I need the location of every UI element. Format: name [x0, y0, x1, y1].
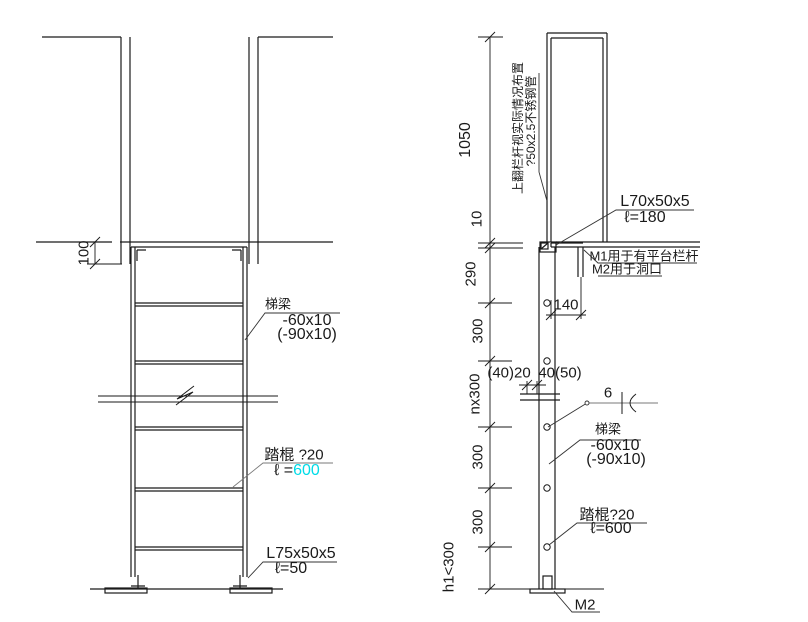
base-mark-m2-label: M2	[575, 598, 596, 613]
rung-length-prefix: ℓ =	[274, 462, 293, 479]
dim-1050-label: 1050	[458, 122, 474, 158]
rung-length-label-left: ℓ =600	[274, 463, 320, 479]
dim-300-label-1: 300	[471, 318, 486, 343]
left-view-break-symbol	[98, 386, 278, 405]
base-angle-length-label: ℓ=50	[275, 561, 307, 577]
dim-splice-right-label: 40(50)	[538, 366, 581, 381]
right-view-splice-dimension	[519, 380, 546, 394]
drawing-linework	[0, 0, 808, 622]
dim-splice-left-label: (40)20	[487, 366, 530, 381]
rung-name-label-left: 踏棍 ?20	[264, 448, 323, 463]
dim-300-label-2: 300	[471, 444, 486, 469]
dim-300-label-3: 300	[471, 509, 486, 534]
beam-size-alt-label-right: (-90x10)	[586, 452, 646, 468]
beam-size-alt-label-left: (-90x10)	[277, 327, 337, 343]
top-angle-length-label: ℓ=180	[624, 210, 665, 226]
ladder-detail-drawing: 100 梯梁 -60x10 (-90x10) 踏棍 ?20 ℓ =600 L75…	[0, 0, 808, 622]
dim-290-label: 290	[464, 261, 479, 286]
left-view-leaders	[245, 313, 340, 578]
rung-length-label-right: ℓ=600	[590, 521, 631, 537]
beam-name-label-left: 梯梁	[265, 298, 291, 311]
rail-note-line2: ?50x2.5不锈钢管	[525, 76, 537, 167]
top-angle-size-label: L70x50x5	[620, 194, 689, 210]
dim-140-label: 140	[553, 298, 578, 313]
dim-100-label: 100	[77, 240, 92, 265]
dim-nx300-label: nx300	[468, 374, 483, 415]
dim-10-label: 10	[470, 211, 485, 228]
dim-h1-300-label: h1<300	[442, 542, 457, 592]
rung-length-value-cyan: 600	[293, 462, 320, 479]
right-view-rung-ends	[544, 300, 550, 550]
beam-name-label-right: 梯梁	[595, 423, 621, 436]
rail-note-line1: 上翻栏杆视实际情况布置	[512, 62, 524, 194]
weld-size-label: 6	[604, 386, 612, 401]
bolt-note-m2-label: M2用于洞口	[592, 263, 662, 276]
